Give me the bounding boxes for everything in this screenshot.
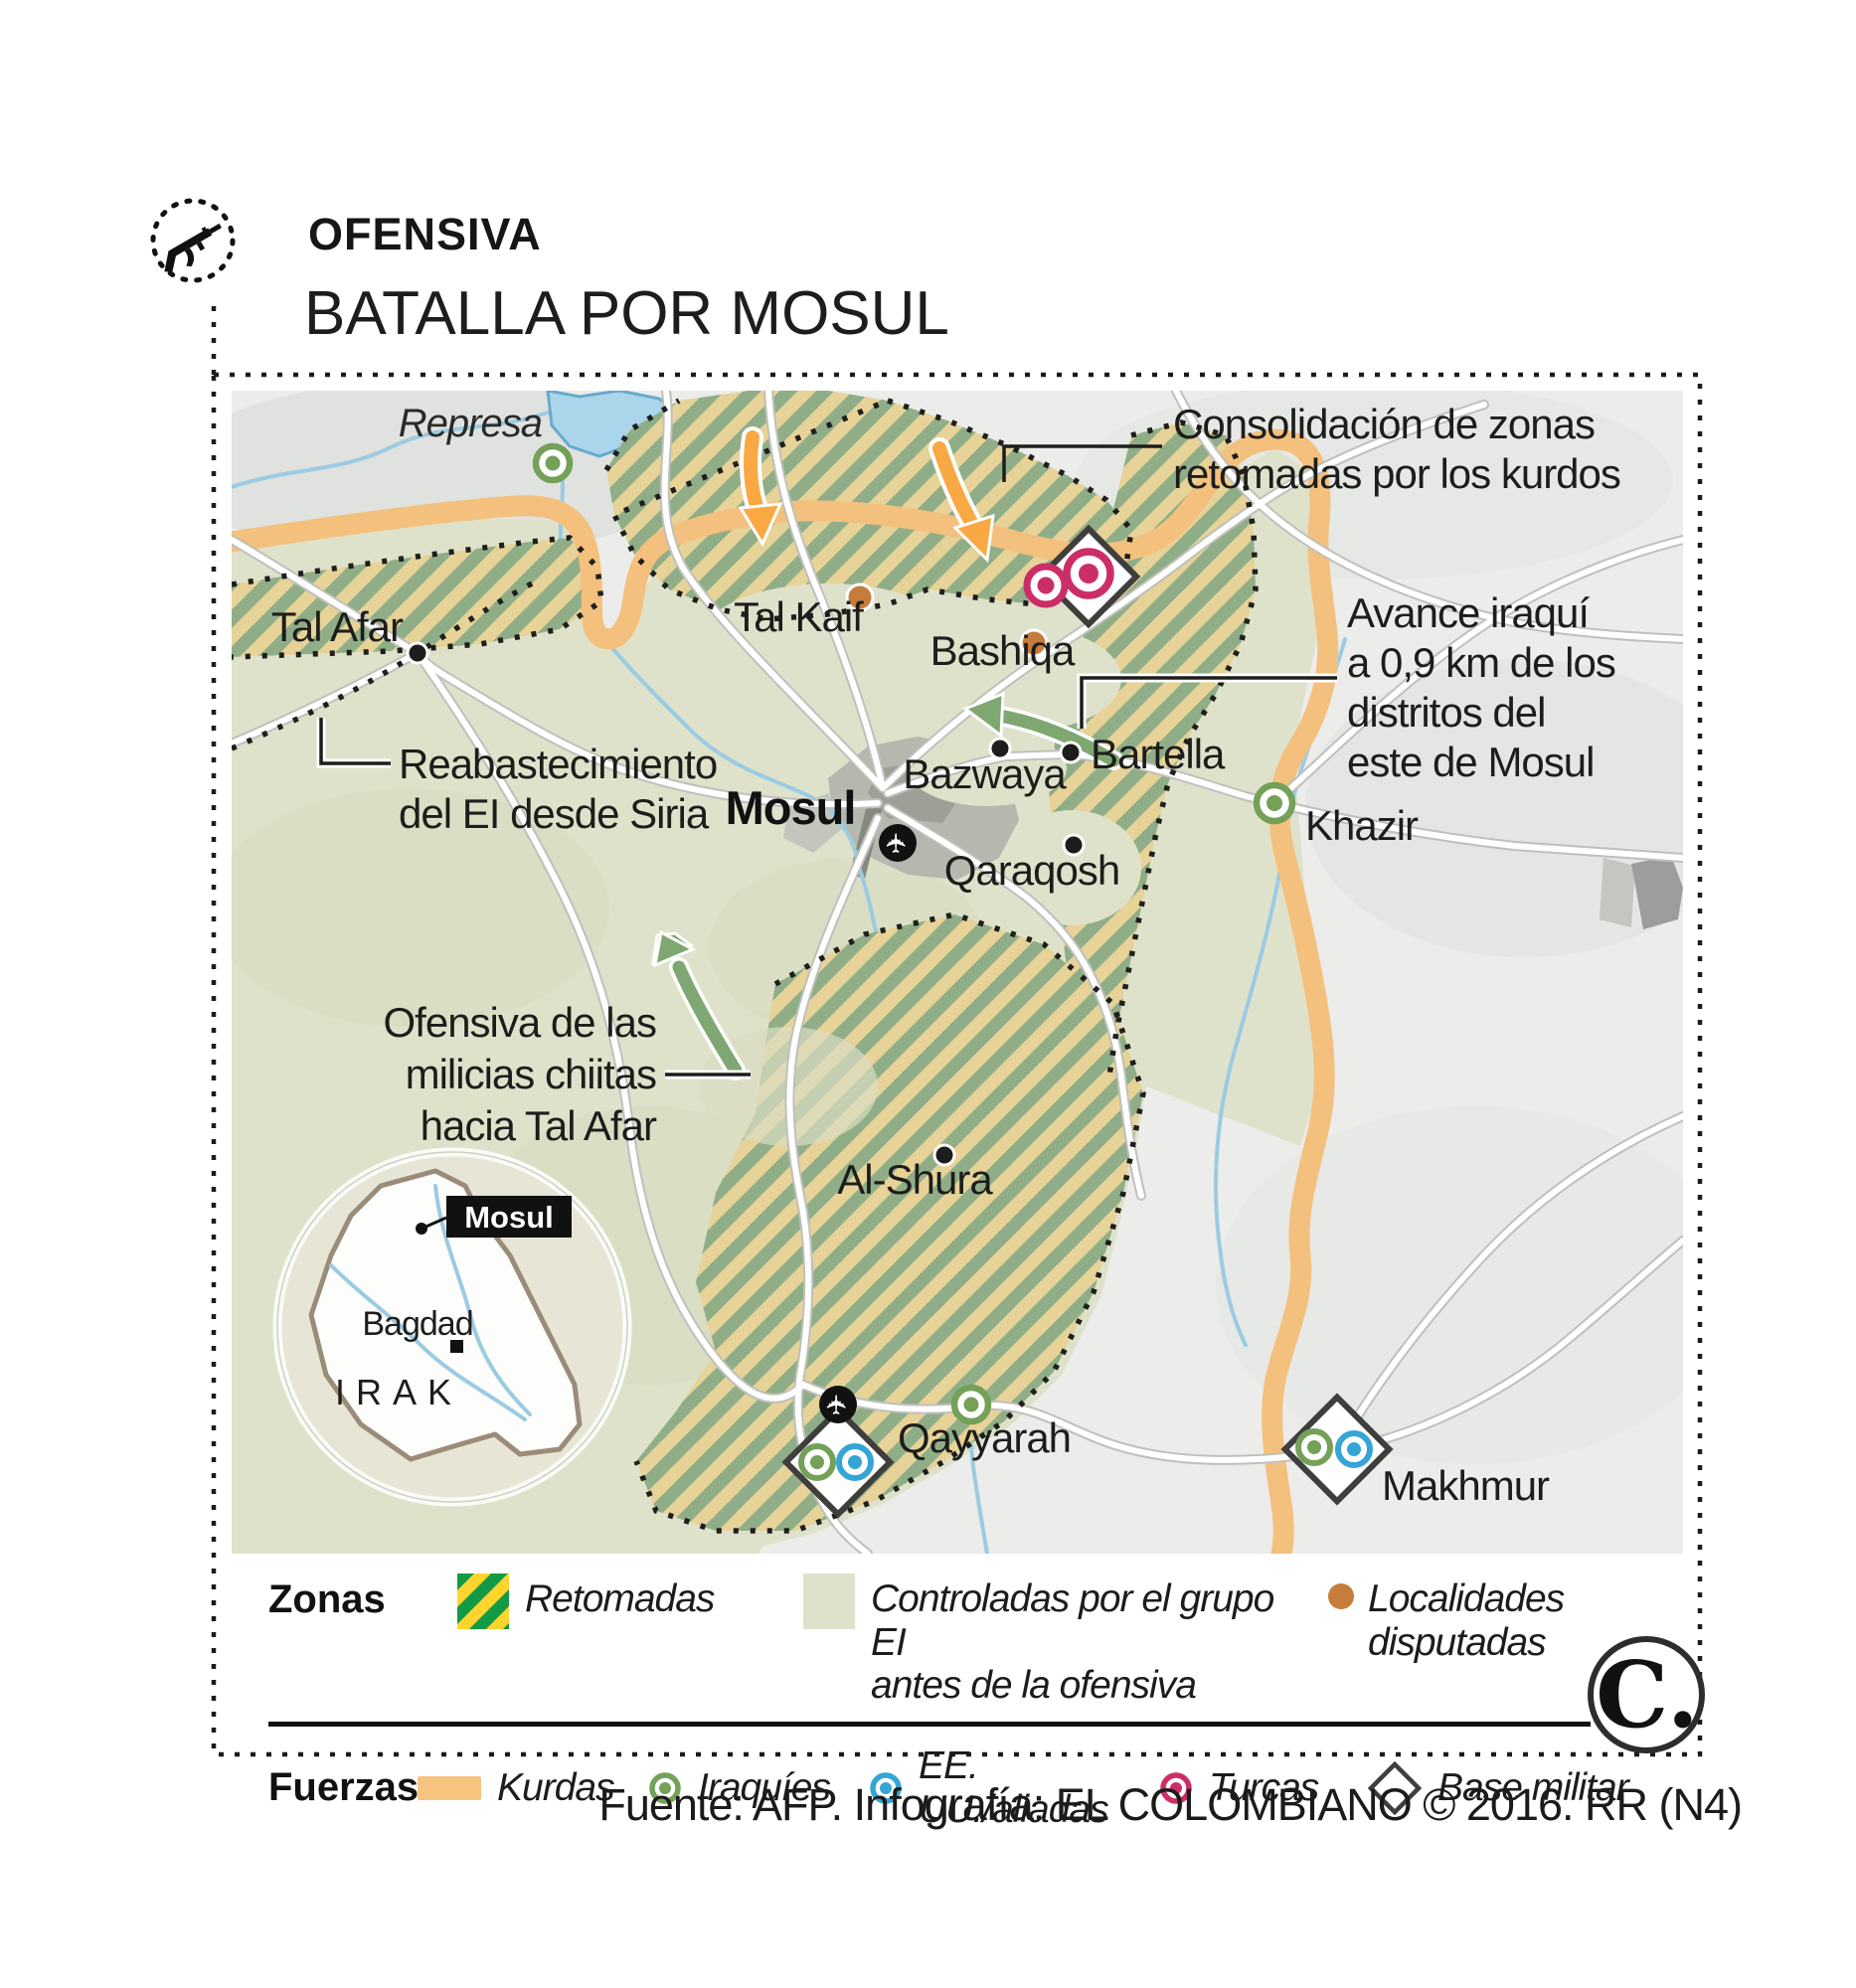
label-represa: Represa [399, 402, 542, 445]
infographic-page: OFENSIVA BATALLA POR MOSUL [0, 0, 1856, 1988]
iraqi-forces-khazir-icon [1257, 785, 1292, 821]
inset-bagdad-square [450, 1340, 463, 1353]
source-credit: Fuente: AFP. Infografía: EL COLOMBIANO ©… [598, 1779, 1742, 1831]
inset-label-irak: IRAK [335, 1372, 462, 1412]
annotation-avance: Avance iraquí [1347, 589, 1590, 636]
iraqi-forces-dam-icon [536, 446, 570, 480]
label-khazir: Khazir [1305, 802, 1419, 849]
label-bartella: Bartella [1091, 731, 1226, 777]
svg-text:hacia Tal Afar: hacia Tal Afar [421, 1102, 657, 1149]
label-mosul: Mosul [726, 781, 856, 834]
annotation-reabastecimiento: Reabastecimiento [399, 741, 717, 787]
annotation-ofensiva-milicias: Ofensiva de las [384, 999, 657, 1046]
label-bazwaya: Bazwaya [903, 750, 1067, 797]
label-tal-kaif: Tal Kaif [734, 593, 864, 640]
legend-retomadas: Retomadas [525, 1574, 773, 1621]
svg-text:✈: ✈ [822, 1394, 852, 1416]
svg-text:milicias chiitas: milicias chiitas [406, 1051, 656, 1097]
page-title: BATALLA POR MOSUL [304, 278, 949, 349]
label-makhmur: Makhmur [1382, 1462, 1550, 1509]
legend-controladas: Controladas por el grupo EI antes de la … [871, 1574, 1288, 1708]
label-al-shura: Al-Shura [837, 1156, 993, 1203]
mosul-airport-icon: ✈ [879, 824, 917, 862]
legend-separator [268, 1722, 1591, 1727]
label-tal-afar: Tal Afar [271, 603, 404, 650]
svg-text:retomadas por los kurdos: retomadas por los kurdos [1173, 450, 1620, 497]
inset-label-bagdad: Bagdad [362, 1305, 472, 1343]
rifle-badge [147, 195, 239, 286]
svg-text:del EI desde Siria: del EI desde Siria [399, 790, 710, 837]
legend-zonas-row: Zonas Retomadas Controladas por el grupo… [268, 1574, 1630, 1708]
annotation-consolidacion: Consolidación de zonas [1173, 401, 1595, 447]
svg-text:este de Mosul: este de Mosul [1347, 739, 1594, 785]
iraq-inset: Mosul Bagdad IRAK [277, 1152, 627, 1502]
svg-text:a 0,9 km de los: a 0,9 km de los [1347, 639, 1615, 686]
el-colombiano-logo: C. [1588, 1636, 1705, 1753]
legend-localidades: Localidades disputadas [1368, 1574, 1564, 1664]
svg-text:✈: ✈ [882, 832, 912, 855]
label-qayyarah: Qayyarah [898, 1414, 1071, 1461]
label-bashiqa: Bashiqa [930, 627, 1076, 674]
controladas-swatch [803, 1574, 855, 1629]
kicker: OFENSIVA [308, 209, 542, 260]
rifle-icon [147, 195, 239, 286]
label-qaraqosh: Qaraqosh [944, 847, 1119, 894]
inset-label-mosul: Mosul [464, 1200, 554, 1235]
kurdas-swatch [418, 1776, 481, 1800]
localidades-disputadas-icon [1328, 1583, 1354, 1609]
battle-map: ✈ ✈ [232, 391, 1683, 1554]
tal-afar-dot [408, 643, 427, 663]
settlement-east [1600, 856, 1683, 929]
legend-zonas-title: Zonas [268, 1574, 437, 1622]
svg-text:distritos del: distritos del [1347, 689, 1545, 736]
legend-fuerzas-title: Fuerzas [268, 1765, 413, 1810]
retomadas-swatch [457, 1574, 509, 1629]
